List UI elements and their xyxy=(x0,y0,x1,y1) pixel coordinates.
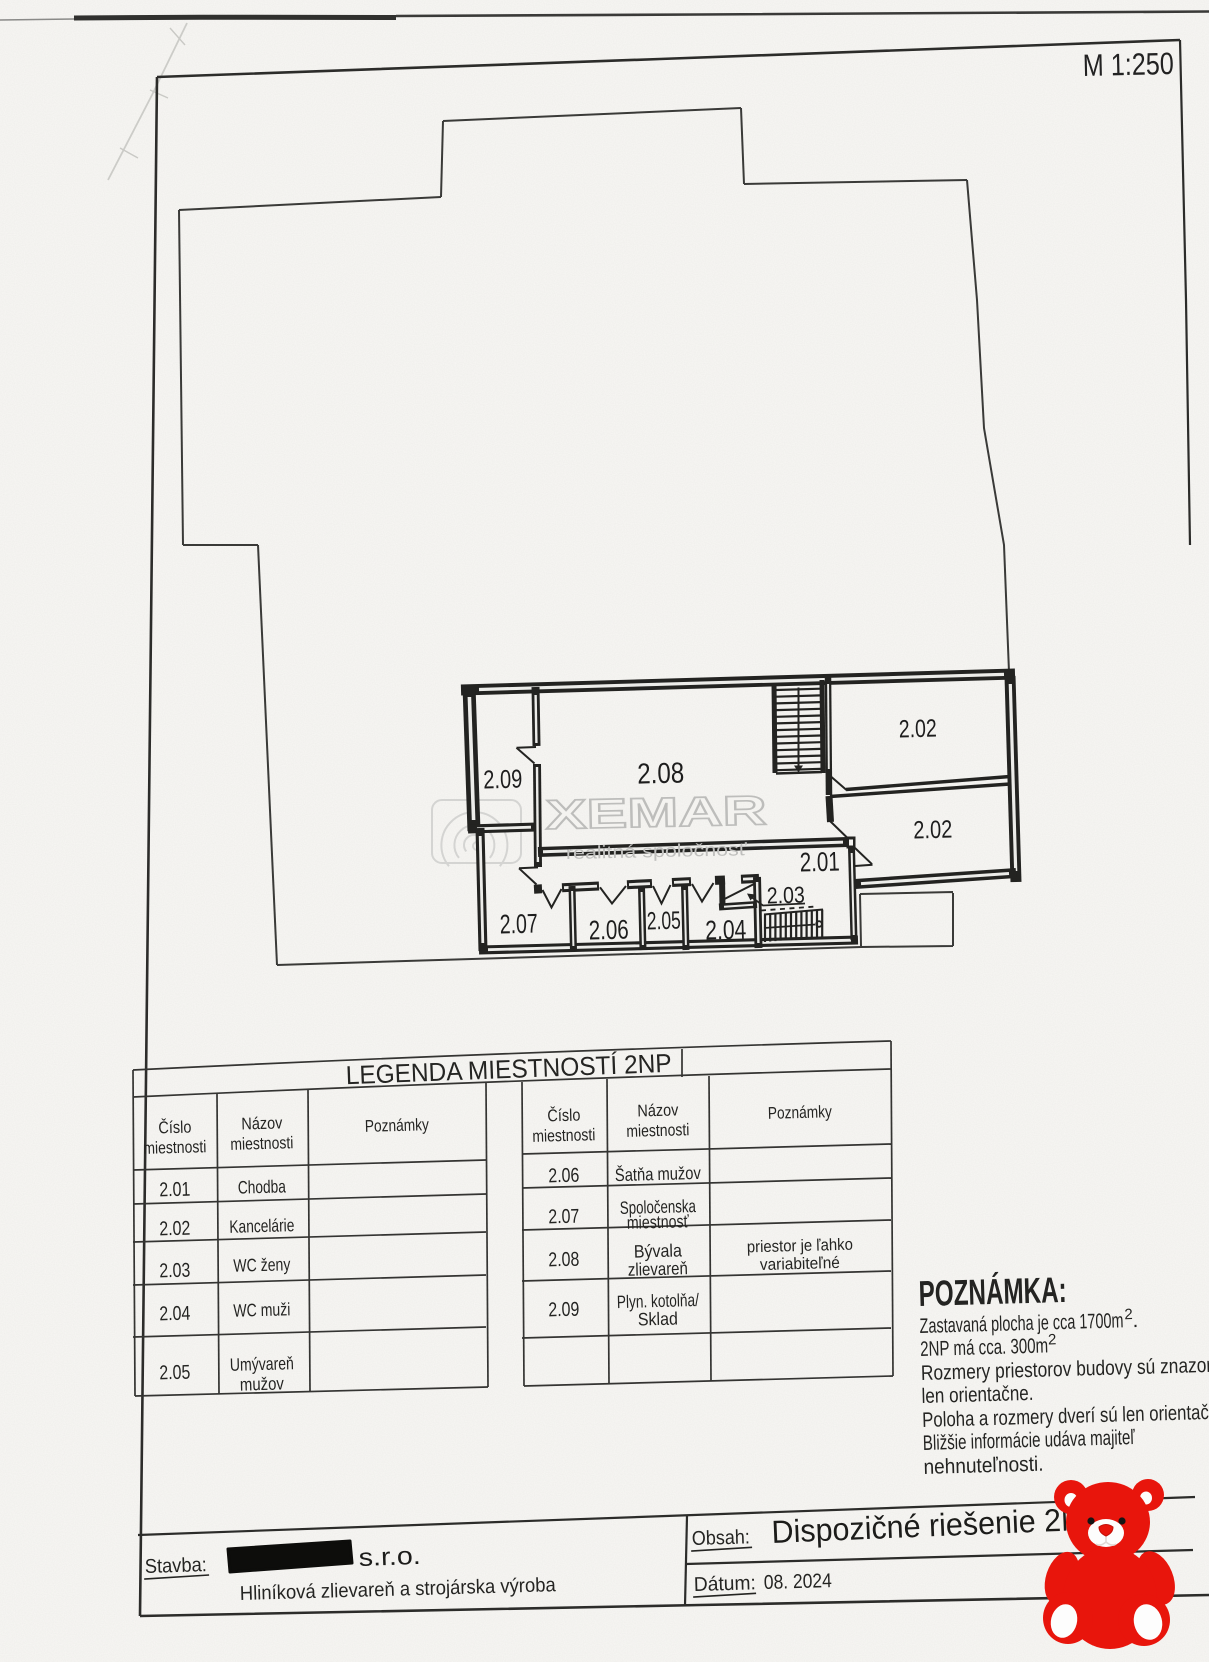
svg-text:2NP má cca. 300m: 2NP má cca. 300m xyxy=(920,1334,1049,1361)
svg-text:Chodba: Chodba xyxy=(238,1176,287,1197)
svg-text:Názov: Názov xyxy=(637,1100,679,1120)
svg-text:2.09: 2.09 xyxy=(548,1299,580,1322)
svg-text:2.02: 2.02 xyxy=(898,715,937,744)
svg-text:2.01: 2.01 xyxy=(159,1179,191,1202)
svg-text:Dátum:: Dátum: xyxy=(694,1572,757,1596)
svg-text:miestnosti: miestnosti xyxy=(230,1133,293,1154)
svg-text:Číslo: Číslo xyxy=(547,1106,580,1126)
svg-text:miestnosti: miestnosti xyxy=(143,1137,206,1158)
svg-text:miestnosť: miestnosť xyxy=(627,1211,690,1233)
svg-text:2.06: 2.06 xyxy=(548,1165,580,1188)
svg-text:2.02: 2.02 xyxy=(159,1218,191,1241)
svg-text:2.03: 2.03 xyxy=(766,882,805,909)
svg-text:len orientačne.: len orientačne. xyxy=(921,1382,1034,1408)
svg-text:Poznámky: Poznámky xyxy=(365,1115,430,1136)
svg-text:Šatňa mužov: Šatňa mužov xyxy=(615,1162,702,1185)
svg-text:Umývareň: Umývareň xyxy=(230,1353,295,1375)
svg-text:M 1:250: M 1:250 xyxy=(1082,46,1174,83)
svg-text:Kancelárie: Kancelárie xyxy=(229,1215,295,1237)
svg-text:2.05: 2.05 xyxy=(646,907,681,936)
svg-text:Stavba:: Stavba: xyxy=(144,1554,207,1578)
svg-text:s.r.o.: s.r.o. xyxy=(358,1542,421,1572)
svg-text:Číslo: Číslo xyxy=(158,1118,191,1138)
svg-text:Poznámky: Poznámky xyxy=(768,1102,833,1123)
svg-text:mužov: mužov xyxy=(240,1373,285,1394)
svg-text:2.02: 2.02 xyxy=(913,815,953,844)
svg-text:WC ženy: WC ženy xyxy=(233,1254,291,1275)
svg-text:2.03: 2.03 xyxy=(159,1260,191,1283)
svg-text:2.08: 2.08 xyxy=(637,757,685,790)
svg-text:variabiteľné: variabiteľné xyxy=(760,1254,840,1274)
svg-text:2.01: 2.01 xyxy=(799,846,840,877)
svg-text:2.09: 2.09 xyxy=(483,763,523,794)
svg-text:Sklad: Sklad xyxy=(638,1308,679,1329)
svg-text:realitná spoločnosť: realitná spoločnosť xyxy=(566,839,748,863)
svg-text:2.04: 2.04 xyxy=(159,1303,191,1326)
svg-text:WC muži: WC muži xyxy=(233,1299,291,1320)
svg-text:2.04: 2.04 xyxy=(705,914,747,945)
svg-text:POZNÁMKA:: POZNÁMKA: xyxy=(918,1269,1067,1314)
svg-text:2.08: 2.08 xyxy=(548,1249,580,1272)
svg-text:nehnuteľnosti.: nehnuteľnosti. xyxy=(923,1453,1044,1479)
svg-text:Názov: Názov xyxy=(241,1113,283,1133)
svg-text:2: 2 xyxy=(1048,1331,1057,1348)
svg-text:XEMAR: XEMAR xyxy=(545,786,767,838)
svg-text:2.07: 2.07 xyxy=(548,1206,580,1229)
svg-text:zlievareň: zlievareň xyxy=(628,1258,689,1280)
svg-text:Obsah:: Obsah: xyxy=(692,1526,751,1550)
svg-text:2.06: 2.06 xyxy=(588,914,629,945)
svg-text:08. 2024: 08. 2024 xyxy=(764,1570,833,1594)
svg-text:.: . xyxy=(1132,1309,1138,1332)
svg-text:2.07: 2.07 xyxy=(499,909,538,940)
svg-text:2.05: 2.05 xyxy=(159,1362,191,1385)
svg-text:miestnosti: miestnosti xyxy=(532,1125,595,1146)
svg-text:miestnosti: miestnosti xyxy=(626,1120,689,1141)
